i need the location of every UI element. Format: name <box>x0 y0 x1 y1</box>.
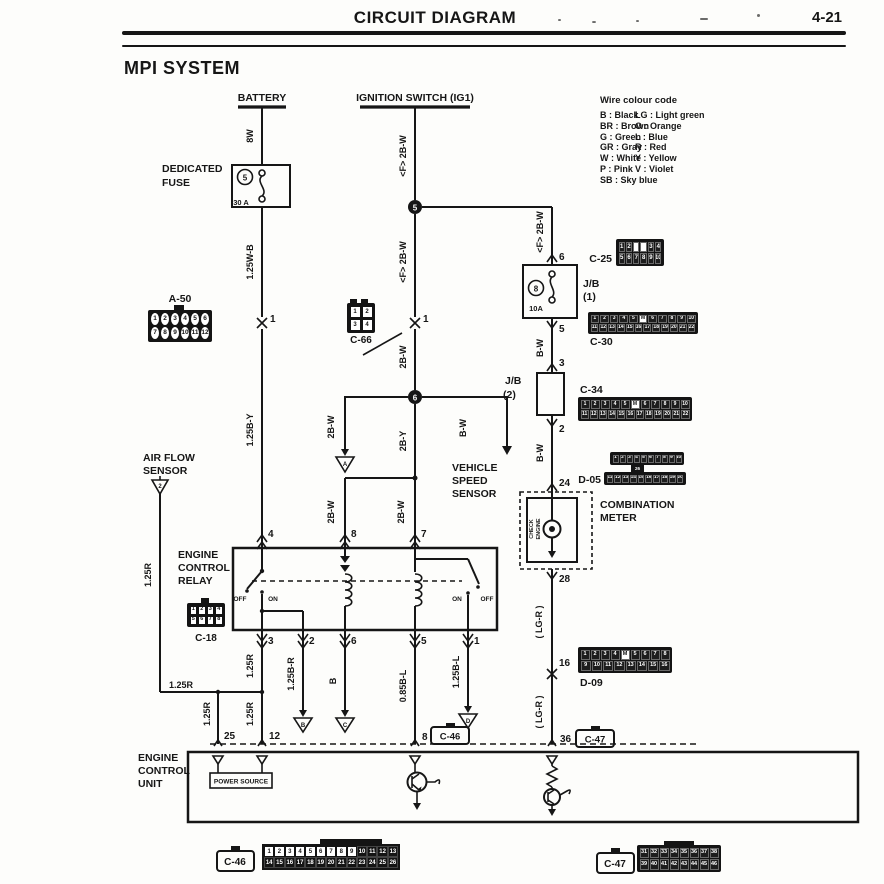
wire-label: 2B-W <box>326 415 336 439</box>
connector-pin: 12 <box>590 410 598 419</box>
connector-pin: 20 <box>663 410 671 419</box>
connector-pin: 10 <box>655 253 661 264</box>
connector-pin: 4 <box>611 400 620 409</box>
connector-label-a50: A-50 <box>169 293 192 305</box>
connector-pin: 1 <box>151 313 159 325</box>
connector-pin: 2 <box>198 606 206 615</box>
junction-x-icon <box>410 318 420 328</box>
connector-pin: 9 <box>677 315 686 323</box>
connector-label-c34: C-34 <box>580 384 603 396</box>
connector-pin: 26 <box>388 857 398 868</box>
connector-pin: 5 <box>305 846 315 857</box>
connector-c46-strip: 1234567891011121314151617181920212223242… <box>262 844 400 870</box>
wire-label: 1.25R <box>169 680 194 690</box>
connector-pin: 8 <box>640 253 646 264</box>
pin-label: 5 <box>559 324 565 335</box>
connector-pin: 22 <box>688 324 696 332</box>
pin-receptacle-icon <box>257 756 267 764</box>
connector-pin: 4 <box>215 606 223 615</box>
connector-pin: 14 <box>637 661 647 671</box>
connector-pin: 38 <box>710 848 719 859</box>
fuse-icon <box>549 271 555 303</box>
connector-pin: 15 <box>617 410 625 419</box>
connector-pin: 10 <box>357 846 367 857</box>
pin-label: 28 <box>559 574 571 585</box>
connector-pin: 2 <box>620 455 626 463</box>
connector-d05-center: 26 <box>631 464 644 473</box>
diode-icon <box>340 556 350 563</box>
jb1-num: (1) <box>583 291 596 303</box>
connector-pin: 13 <box>626 661 636 671</box>
airflow-label: AIR FLOW <box>143 452 195 464</box>
arrowhead-icon <box>502 446 512 455</box>
vss-label: SENSOR <box>452 488 497 500</box>
ground-letter: B <box>301 723 306 729</box>
connector-pin: 6 <box>648 455 654 463</box>
wire-label: 1.25B-R <box>286 657 296 691</box>
check-engine-label: ENGINE <box>536 518 542 539</box>
connector-pin: 46 <box>710 859 719 870</box>
pin-label: 6 <box>351 636 357 647</box>
connector-pin: 10 <box>676 455 682 463</box>
connector-tab <box>446 723 455 728</box>
connector-label-d09: D-09 <box>580 677 603 689</box>
pin-label: 2 <box>559 424 565 435</box>
connector-pin: 19 <box>654 410 662 419</box>
ground-letter: C <box>343 723 348 729</box>
connector-pin: 1 <box>581 400 590 409</box>
connector-pin: 12 <box>614 475 621 483</box>
wire-label: ( LG-R ) <box>534 696 544 729</box>
connector-pin: 1 <box>613 455 619 463</box>
connector-pin: 9 <box>671 400 680 409</box>
connector-tab <box>231 846 240 852</box>
connector-pin: 5 <box>629 315 638 323</box>
connector-pin: 3 <box>207 606 215 615</box>
connector-pin: 13 <box>608 324 616 332</box>
connector-pin: 15 <box>626 324 634 332</box>
connector-pin: 18 <box>305 857 315 868</box>
connector-pin: 9 <box>581 661 591 671</box>
connector-pin: 42 <box>670 859 679 870</box>
relay-coil-icon <box>345 574 352 606</box>
connector-pin: 8 <box>215 616 223 625</box>
pin-label: 2 <box>309 636 315 647</box>
connector-pin: 1 <box>581 650 590 660</box>
relay-label: CONTROL <box>178 562 230 574</box>
dedicated-fuse-label: DEDICATED <box>162 163 223 175</box>
relay-coil-icon <box>415 574 422 606</box>
connector-pin: 9 <box>171 327 179 339</box>
connector-pin: 17 <box>636 410 644 419</box>
pin-receptacle-icon <box>410 756 420 764</box>
connector-pin: 34 <box>670 848 679 859</box>
connector-tab <box>591 726 600 731</box>
connector-pin: 15 <box>274 857 284 868</box>
wire-label: B-W <box>458 419 468 437</box>
wire-label: 0.85B-L <box>398 669 408 702</box>
relay-on-label: ON <box>452 596 462 603</box>
connector-pin: 2 <box>161 313 169 325</box>
connector-label-c25: C-25 <box>589 253 612 265</box>
ignition-label: IGNITION SWITCH (IG1) <box>356 92 474 104</box>
connector-pin: 17 <box>643 324 651 332</box>
connector-pin: 11 <box>591 324 599 332</box>
connector-pin: 7 <box>658 315 667 323</box>
connector-pin: 3 <box>601 650 610 660</box>
fuse-number: 5 <box>243 174 248 183</box>
connector-pin: 12 <box>377 846 387 857</box>
wire-label: <F> 2B-W <box>398 135 408 177</box>
connector-pin: 8 <box>661 400 670 409</box>
connector-pin: 4 <box>295 846 305 857</box>
connector-pin: 16 <box>659 661 669 671</box>
connector-label-c46: C-46 <box>440 732 461 743</box>
pin-label: 16 <box>559 658 571 669</box>
connector-pin: 6 <box>641 650 650 660</box>
connector-pin: 6 <box>198 616 206 625</box>
connector-pin: 7 <box>326 846 336 857</box>
connector-pin: 41 <box>660 859 669 870</box>
wire-label-8w: 8W <box>245 129 255 143</box>
connector-pin: 20 <box>326 857 336 868</box>
connector-label-c30: C-30 <box>590 336 613 348</box>
connector-pin: 5 <box>621 400 630 409</box>
wire-label: 1.25B-L <box>451 655 461 688</box>
pin-label: 12 <box>269 731 281 742</box>
connector-pin: 17 <box>295 857 305 868</box>
connector-pin: 22 <box>347 857 357 868</box>
connector-pin: 11 <box>607 475 614 483</box>
connector-d05-top: 12345678910 <box>610 452 684 465</box>
connector-pin: 43 <box>680 859 689 870</box>
relay-on-label: ON <box>268 596 278 603</box>
connector-pin: 2 <box>626 242 632 253</box>
connector-label-c46: C-46 <box>224 857 246 868</box>
connector-pin: 24 <box>367 857 377 868</box>
connector-pin: 1 <box>264 846 274 857</box>
node-number: 6 <box>413 394 418 403</box>
pin-label: 3 <box>559 358 565 369</box>
junction-dot <box>260 690 264 694</box>
jb2-num: (2) <box>503 389 516 401</box>
connector-pin: 3 <box>350 319 361 331</box>
relay-off-label: OFF <box>481 596 494 603</box>
connector-c47-strip: 31323334353637383940414243444546 <box>637 845 721 872</box>
connector-pin: 3 <box>601 400 610 409</box>
connector-pin: 7 <box>651 400 660 409</box>
connector-label-c47: C-47 <box>604 859 626 870</box>
connector-pin: 13 <box>622 475 629 483</box>
connector-pin: 39 <box>640 859 649 870</box>
connector-pin: 7 <box>655 455 661 463</box>
connector-pin: 5 <box>191 313 199 325</box>
junction-block-2 <box>537 373 564 415</box>
pin-label: 8 <box>422 732 428 743</box>
connector-pin: 13 <box>599 410 607 419</box>
connector-pin: 37 <box>700 848 709 859</box>
connector-pin: 21 <box>672 410 680 419</box>
relay-output-wires: 1.25R 1.25R 12 1.25B-R B B C 0.85B-L 8 C… <box>245 630 477 744</box>
pin-label: 8 <box>351 529 357 540</box>
relay-label: RELAY <box>178 575 213 587</box>
wire-label: 1.25R <box>202 701 212 726</box>
connector-pin <box>633 242 639 253</box>
pin-label: 3 <box>268 636 274 647</box>
connector-pin: 1 <box>619 242 625 253</box>
connector-pin: 16 <box>285 857 295 868</box>
connector-pin: 9 <box>347 846 357 857</box>
connector-pin: 19 <box>669 475 676 483</box>
engine-control-relay: ENGINE CONTROL RELAY OFF ON <box>178 535 497 648</box>
connector-c66: 1234 <box>347 303 375 333</box>
connector-pin: 35 <box>680 848 689 859</box>
connector-pin: 15 <box>648 661 658 671</box>
connector-pin: 3 <box>285 846 295 857</box>
connector-pin: 20 <box>670 324 678 332</box>
ecu-label: UNIT <box>138 778 163 790</box>
connector-pin: 6 <box>201 313 209 325</box>
connector-pin: 3 <box>648 242 654 253</box>
dedicated-fuse-label: FUSE <box>162 177 190 189</box>
fuse-icon <box>259 170 265 202</box>
connector-pin: 25 <box>377 857 387 868</box>
connector-pin: 11 <box>603 661 613 671</box>
connector-pin: 4 <box>655 242 661 253</box>
diode-icon <box>340 565 350 572</box>
arrowhead-icon <box>548 551 556 558</box>
connector-pin: 9 <box>648 253 654 264</box>
connector-pin: 11 <box>367 846 377 857</box>
connector-pin: 2 <box>362 306 373 318</box>
connector-c25: 12345678910 <box>616 239 664 266</box>
connector-c18: 12345678 <box>187 603 225 627</box>
connector-pin: 40 <box>650 859 659 870</box>
connector-pin: 1 <box>350 306 361 318</box>
fuse-rating: 30 A <box>233 198 249 207</box>
connector-pin: 18 <box>661 475 668 483</box>
connector-pin: 7 <box>651 650 660 660</box>
connector-pin: 2 <box>591 400 600 409</box>
connector-pin: 8 <box>336 846 346 857</box>
connector-label-d05: D-05 <box>578 474 601 486</box>
node-number: 5 <box>413 204 418 213</box>
connector-pin: 31 <box>640 848 649 859</box>
ecu-label: CONTROL <box>138 765 190 777</box>
ecu-label: ENGINE <box>138 752 178 764</box>
wire-label: 2B-W <box>398 345 408 369</box>
transistor-icon <box>408 764 440 810</box>
combination-meter-label: METER <box>600 512 637 524</box>
connector-pin: 4 <box>619 315 628 323</box>
arrowhead-icon <box>299 710 307 717</box>
wire-label: 2B-W <box>396 500 406 524</box>
wire-label: 1.25B-Y <box>245 413 255 446</box>
fuse-number: 8 <box>534 285 539 294</box>
pin-label: 5 <box>421 636 427 647</box>
connector-pin: 44 <box>690 859 699 870</box>
relay-label: ENGINE <box>178 549 218 561</box>
wire-label: B-W <box>535 339 545 357</box>
connector-pin: 8 <box>662 455 668 463</box>
connector-pin: 9 <box>669 455 675 463</box>
pin-label: 6 <box>559 252 565 263</box>
connector-pin: 22 <box>681 410 689 419</box>
connector-pin: 14 <box>608 410 616 419</box>
connector-pin: 11 <box>191 327 199 339</box>
connector-pin: 16 <box>645 475 652 483</box>
pin-label: 4 <box>268 529 274 540</box>
connector-pin: 5 <box>619 253 625 264</box>
arrowhead-icon <box>341 449 349 456</box>
connector-pin: 2 <box>274 846 284 857</box>
connector-pin: 14 <box>630 475 637 483</box>
combination-meter-label: COMBINATION <box>600 499 674 511</box>
connector-pin: 6 <box>648 315 657 323</box>
relay-off-label: OFF <box>234 596 247 603</box>
connector-pin: 36 <box>690 848 699 859</box>
connector-pin: 5 <box>190 616 198 625</box>
vss-label: SPEED <box>452 475 488 487</box>
connector-pin: 7 <box>207 616 215 625</box>
connector-pin <box>640 242 646 253</box>
junction-x-icon <box>257 318 267 328</box>
connector-pin: 18 <box>645 410 653 419</box>
connector-pin: 14 <box>264 857 274 868</box>
wire-label: ( LG-R ) <box>534 606 544 639</box>
connector-pin: 19 <box>661 324 669 332</box>
connector-pin: 11 <box>581 410 589 419</box>
manual-page: CIRCUIT DIAGRAM 4-21 MPI SYSTEM Wire col… <box>0 0 884 884</box>
connector-pin: 10 <box>687 315 696 323</box>
connector-pin: 1 <box>190 606 198 615</box>
connector-pin: M <box>631 400 640 409</box>
wire-label: 1.25R <box>245 653 255 678</box>
pin-label: 1 <box>270 314 276 325</box>
check-engine-label: CHECK <box>529 519 535 539</box>
connector-pin: 13 <box>388 846 398 857</box>
engine-control-unit: ENGINE CONTROL UNIT POWER SOURCE <box>138 740 858 822</box>
connector-c30: 12345M678910111213141516171819202122 <box>588 312 698 334</box>
connector-pin: 10 <box>181 327 189 339</box>
ground-letter: A <box>343 462 348 468</box>
battery-label: BATTERY <box>238 92 286 104</box>
connector-c34: 12345M678910111213141516171819202122 <box>578 397 692 421</box>
connector-pin: 14 <box>617 324 625 332</box>
wire-label: <F> 2B-W <box>398 241 408 283</box>
ground-letter: D <box>466 719 471 725</box>
connector-pin: 7 <box>633 253 639 264</box>
connector-pin: 2 <box>591 650 600 660</box>
wire-label: B-W <box>535 444 545 462</box>
connector-pin: 3 <box>171 313 179 325</box>
connector-tab <box>611 848 620 854</box>
arrowhead-icon <box>341 710 349 717</box>
connector-pin: 10 <box>592 661 602 671</box>
ecu-box <box>188 752 858 822</box>
pin-receptacle-icon <box>547 756 557 764</box>
pin-receptacle-icon <box>213 756 223 764</box>
pin-label: 1 <box>474 636 480 647</box>
connector-label-c18: C-18 <box>195 633 217 644</box>
relay-switch-arm <box>247 571 262 589</box>
connector-pin: 32 <box>650 848 659 859</box>
connector-pin: 7 <box>151 327 159 339</box>
circuit-schematic: BATTERY 8W DEDICATED FUSE 5 30 A 1 1.25W… <box>0 0 884 884</box>
wire-label: 1.25W-B <box>245 244 255 280</box>
relay-switch-arm <box>468 559 479 584</box>
connector-pin: 8 <box>161 327 169 339</box>
connector-pin: 6 <box>626 253 632 264</box>
pin-label: 1 <box>423 314 429 325</box>
connector-pin: 10 <box>681 400 690 409</box>
connector-pin: 4 <box>181 313 189 325</box>
arrowhead-icon <box>464 706 472 713</box>
vss-label: VEHICLE <box>452 462 498 474</box>
connector-pin: 3 <box>627 455 633 463</box>
connector-pin: 2 <box>600 315 609 323</box>
wire-label: 2B-Y <box>398 431 408 452</box>
wire-label: 2B-W <box>326 500 336 524</box>
connector-pin: 12 <box>201 327 209 339</box>
connector-pin: 18 <box>652 324 660 332</box>
connector-pin: 20 <box>677 475 684 483</box>
connector-pin: 12 <box>614 661 624 671</box>
triangle-id: 2 <box>158 484 162 490</box>
connector-d05-bottom: 11121314151617181920 <box>604 472 686 485</box>
wire-label: <F> 2B-W <box>535 211 545 253</box>
connector-pin: M <box>621 650 630 660</box>
connector-pin: 15 <box>638 475 645 483</box>
connector-label-c66: C-66 <box>350 335 372 346</box>
connector-pin: 6 <box>316 846 326 857</box>
connector-pin: 4 <box>634 455 640 463</box>
connector-pin: 5 <box>641 455 647 463</box>
fuse-rating: 10A <box>529 304 543 313</box>
connector-pin: 1 <box>591 315 600 323</box>
connector-pin: M <box>639 315 648 323</box>
pin-label: 25 <box>224 731 236 742</box>
airflow-label: SENSOR <box>143 465 188 477</box>
connector-pin: 3 <box>610 315 619 323</box>
connector-pin: 17 <box>653 475 660 483</box>
connector-a50: 123456789101112 <box>148 310 212 342</box>
connector-d09: 1234M5678910111213141516 <box>578 647 672 673</box>
connector-pin: 21 <box>679 324 687 332</box>
connector-pin: 19 <box>316 857 326 868</box>
connector-pin: 8 <box>668 315 677 323</box>
connector-pin: 45 <box>700 859 709 870</box>
connector-pin: 8 <box>661 650 670 660</box>
power-source-label: POWER SOURCE <box>214 779 269 786</box>
connector-pin: 6 <box>641 400 650 409</box>
connector-pin: 4 <box>611 650 620 660</box>
jb1-label: J/B <box>583 278 600 290</box>
connector-pin: 16 <box>635 324 643 332</box>
resistor-transistor-icon <box>544 764 570 816</box>
connector-pin: 33 <box>660 848 669 859</box>
jb2-label: J/B <box>505 375 522 387</box>
wire-label: 1.25R <box>245 701 255 726</box>
wire-label: 1.25R <box>143 562 153 587</box>
connector-pin: 16 <box>626 410 634 419</box>
connector-pin: 21 <box>336 857 346 868</box>
connector-pin: 4 <box>362 319 373 331</box>
connector-pin: 23 <box>357 857 367 868</box>
connector-pin: 5 <box>631 650 640 660</box>
pin-label: 24 <box>559 478 571 489</box>
pin-label: 7 <box>421 529 427 540</box>
